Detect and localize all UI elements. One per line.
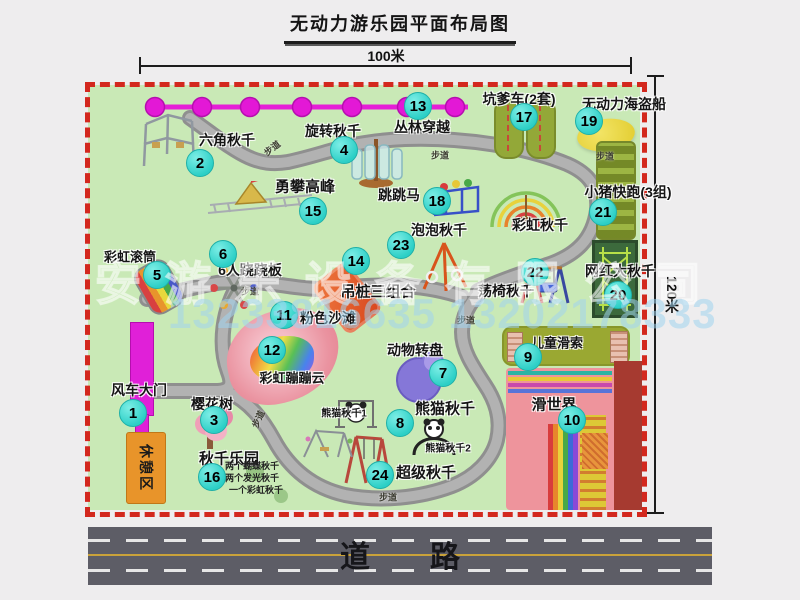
slide-world-rainbow-slides [548, 424, 578, 510]
swing-park-note-1: 两个蝴蝶秋千 [225, 461, 279, 472]
badge-10: 10 [558, 406, 586, 434]
walkway-label: 步道 [431, 149, 449, 162]
label-super-swing: 超级秋千 [396, 462, 456, 483]
label-jungle-crossing: 丛林穿越 [394, 117, 450, 137]
badge-12: 12 [258, 336, 286, 364]
slide-world-top-stripes [508, 371, 612, 395]
badge-17: 17 [510, 103, 538, 131]
badge-14: 14 [342, 247, 370, 275]
walkway-label: 步道 [241, 285, 259, 298]
width-dimension-line [140, 65, 632, 67]
swing-park-note-3: 一个彩虹秋千 [229, 485, 283, 496]
swing-park-icon [300, 425, 356, 461]
walkway-label: 步道 [457, 314, 475, 327]
width-dimension-tick-right [630, 57, 632, 74]
badge-22: 22 [521, 258, 549, 286]
badge-1: 1 [119, 399, 147, 427]
badge-2: 2 [186, 149, 214, 177]
label-rainbow-swing: 彩虹秋千 [512, 215, 568, 235]
label-jumping-horse: 跳跳马 [378, 185, 420, 205]
width-dimension-tick-left [139, 57, 141, 74]
badge-20: 20 [604, 281, 632, 309]
label-hexagon-swing: 六角秋千 [199, 130, 255, 150]
label-swing-chair: 荡椅秋千 [478, 281, 534, 301]
slide-world-red-band [614, 361, 642, 510]
park-layout-map: 无动力游乐园平面布局图 100米 120米 [0, 0, 800, 600]
badge-13: 13 [404, 92, 432, 120]
road-label: 道 路 [340, 532, 460, 576]
bubble-swing-icon [416, 237, 472, 295]
badge-18: 18 [423, 187, 451, 215]
badge-11: 11 [270, 301, 298, 329]
walkway-label: 步道 [596, 150, 614, 163]
label-climbing-peak: 勇攀高峰 [275, 176, 335, 197]
badge-5: 5 [143, 261, 171, 289]
rest-area-label: 休憩区 [136, 444, 156, 492]
badge-7: 7 [429, 359, 457, 387]
height-dimension-tick-bottom [647, 512, 664, 514]
label-influencer-big-swing: 网红大秋千 [585, 261, 655, 281]
rotating-swing-icon [348, 133, 404, 189]
badge-4: 4 [330, 136, 358, 164]
label-pink-beach: 粉色沙滩 [300, 308, 356, 328]
width-dimension-label: 100米 [367, 46, 404, 66]
road: 道 路 [88, 527, 712, 585]
badge-8: 8 [386, 409, 414, 437]
label-rainbow-bounce-cloud: 彩虹蹦蹦云 [259, 368, 324, 387]
badge-19: 19 [575, 107, 603, 135]
label-windmill-gate: 风车大门 [111, 380, 167, 400]
park-area: 步道 步道 步道 步道 步道 步道 步道 [88, 85, 640, 510]
badge-23: 23 [387, 231, 415, 259]
badge-3: 3 [200, 406, 228, 434]
badge-9: 9 [514, 343, 542, 371]
label-panda-swing-2: 熊猫秋千2 [425, 440, 471, 455]
height-dimension-line [654, 76, 656, 514]
height-dimension-tick-top [647, 75, 664, 77]
swing-park-note-2: 两个发光秋千 [225, 473, 279, 484]
label-hanging-pile-combo: 吊桩三组合 [340, 281, 415, 302]
rest-area-sign: 休憩区 [126, 432, 166, 504]
label-bubble-swing: 泡泡秋千 [411, 220, 467, 240]
badge-21: 21 [589, 198, 617, 226]
badge-15: 15 [299, 197, 327, 225]
walkway-label: 步道 [379, 491, 397, 504]
badge-6: 6 [209, 240, 237, 268]
height-dimension-label: 120米 [662, 276, 682, 313]
label-animal-carousel: 动物转盘 [387, 340, 443, 360]
page-title: 无动力游乐园平面布局图 [284, 10, 516, 44]
badge-16: 16 [198, 463, 226, 491]
badge-24: 24 [366, 461, 394, 489]
slide-world-orange-patch [582, 433, 608, 469]
label-panda-swing-1: 熊猫秋千1 [321, 405, 367, 420]
label-panda-swing: 熊猫秋千 [415, 398, 475, 419]
